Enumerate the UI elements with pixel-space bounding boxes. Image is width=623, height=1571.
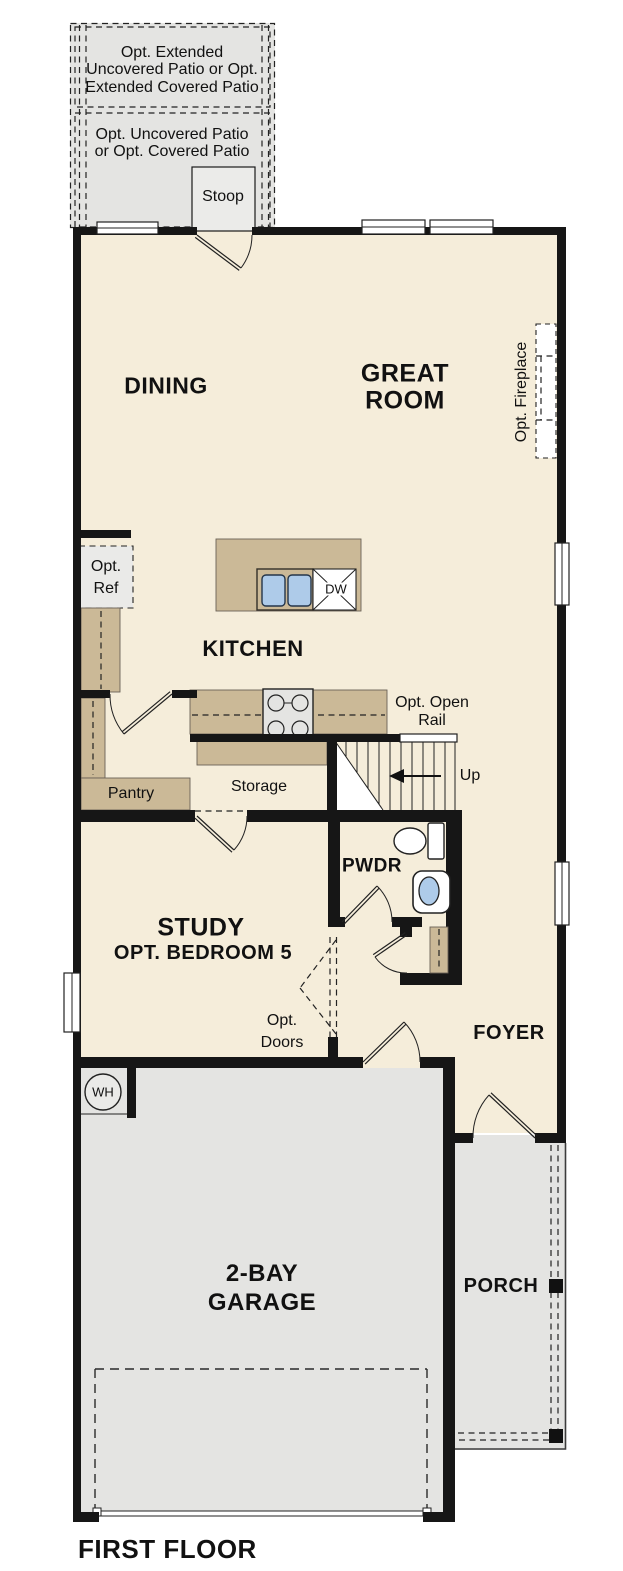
window	[362, 220, 425, 234]
pantry-label: Pantry	[108, 786, 154, 802]
dishwasher-label: DW	[324, 583, 348, 596]
opt-open-rail-label-1: Opt. Open	[395, 695, 469, 711]
dining-label: DINING	[124, 375, 208, 398]
floor-title: FIRST FLOOR	[78, 1536, 257, 1562]
opt-doors-label-2: Doors	[261, 1035, 304, 1051]
great-room-label-2: ROOM	[365, 389, 445, 414]
garage-label-2: GARAGE	[208, 1291, 316, 1315]
window	[430, 220, 493, 234]
opt-ref-label-1: Opt.	[91, 559, 121, 575]
refrigerator-area	[79, 546, 133, 608]
open-rail	[400, 734, 457, 742]
sink-basin	[288, 575, 311, 606]
opt-fireplace-label: Opt. Fireplace	[514, 342, 530, 442]
water-heater-label: WH	[92, 1086, 114, 1099]
patio-extended-label-3: Extended Covered Patio	[85, 80, 258, 96]
storage-label: Storage	[231, 779, 287, 795]
great-room-label-1: GREAT	[361, 362, 449, 387]
patio-label-1: Opt. Uncovered Patio	[96, 127, 249, 143]
kitchen-label: KITCHEN	[202, 638, 303, 660]
porch-post	[549, 1279, 563, 1293]
stoop-label: Stoop	[202, 189, 244, 205]
window	[97, 222, 158, 234]
garage-label-1: 2-BAY	[226, 1262, 298, 1286]
fireplace-outline	[536, 324, 556, 458]
opt-ref-label-2: Ref	[94, 581, 119, 597]
study-label-1: STUDY	[157, 916, 244, 941]
foyer-label: FOYER	[473, 1023, 544, 1043]
sink-icon	[413, 871, 450, 913]
window	[555, 543, 569, 605]
first-floor-plan: Opt. Extended Uncovered Patio or Opt. Ex…	[0, 0, 623, 1571]
powder-label: PWDR	[342, 857, 402, 876]
porch-post	[549, 1429, 563, 1443]
window	[64, 973, 80, 1032]
porch-label: PORCH	[464, 1276, 539, 1296]
study-label-2: OPT. BEDROOM 5	[114, 943, 292, 963]
storage-shelf	[197, 741, 327, 765]
opt-doors-label-1: Opt.	[267, 1013, 297, 1029]
window	[555, 862, 569, 925]
floorplan-graphics	[0, 0, 623, 1571]
up-label: Up	[460, 768, 480, 784]
patio-extended-label-2: Uncovered Patio or Opt.	[86, 62, 258, 78]
sink-basin	[262, 575, 285, 606]
patio-extended-label-1: Opt. Extended	[121, 45, 223, 61]
opt-open-rail-label-2: Rail	[418, 713, 446, 729]
patio-label-2: or Opt. Covered Patio	[95, 144, 250, 160]
interior-floor	[77, 231, 566, 1133]
